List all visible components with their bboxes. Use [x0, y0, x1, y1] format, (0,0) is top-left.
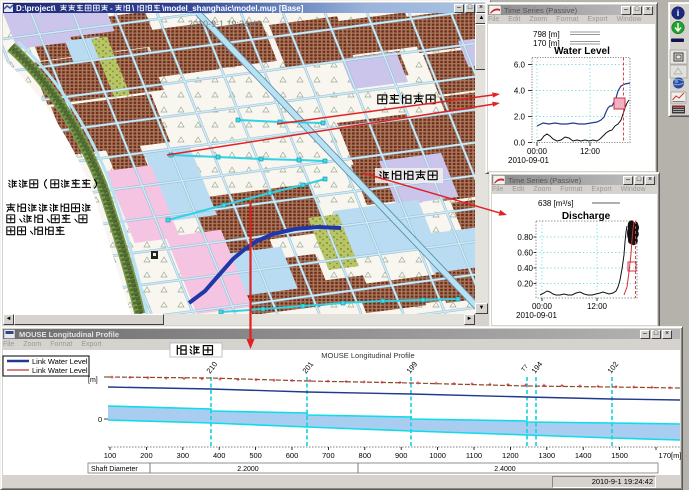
svg-text:Time Series (Passive): Time Series (Passive): [504, 6, 578, 15]
svg-text:\: \: [132, 4, 135, 13]
svg-text:i: i: [677, 8, 680, 18]
svg-text:MOUSE Longitudinal Profile: MOUSE Longitudinal Profile: [19, 330, 119, 339]
svg-text:2010-9-1 19:24:42: 2010-9-1 19:24:42: [188, 19, 262, 29]
svg-text:-: -: [110, 4, 113, 13]
svg-text:\model_shanghaic\model.mup [Ba: \model_shanghaic\model.mup [Base]: [162, 4, 304, 13]
svg-text:D:\project\: D:\project\: [16, 4, 56, 13]
svg-text:Time Series (Passive): Time Series (Passive): [508, 176, 582, 185]
